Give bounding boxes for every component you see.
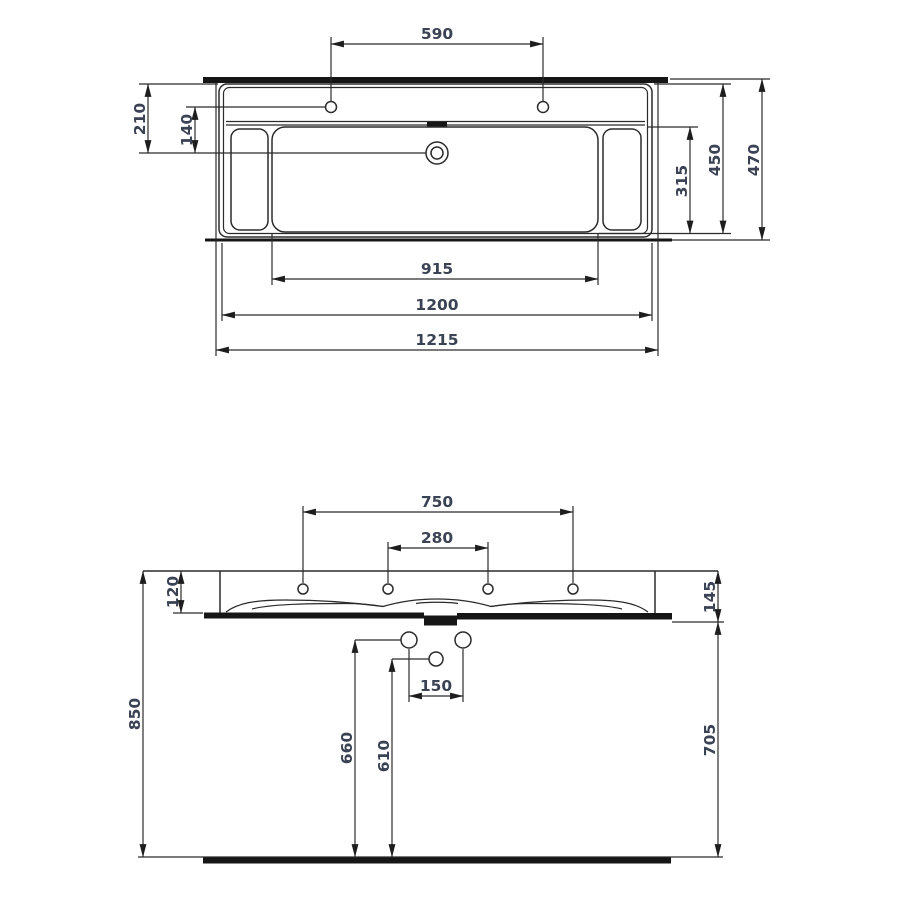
dim-bowl-edge-to-drain: 140 [178,107,325,153]
dim-rim-depth: 450 [654,84,731,234]
dim-label-315: 315 [673,165,691,197]
dim-label-750: 750 [421,493,454,511]
mounting-hole-1 [298,584,308,594]
mounting-hole-4 [568,584,578,594]
trap-block [424,616,457,626]
front-view: 750 280 120 145 150 660 [126,493,724,864]
waste-outlet-left [401,632,417,648]
dim-waste-spacing: 150 [409,649,463,702]
dim-label-705: 705 [701,724,719,756]
dim-label-450: 450 [706,144,724,177]
dim-left-waste-height: 660 [338,640,356,857]
mounting-hole-3 [483,584,493,594]
bowl-underside-inner-center [416,602,458,603]
dim-edge-to-drain: 210 [131,84,426,153]
bowl-underside-inner-right [491,604,622,610]
dim-label-850: 850 [126,698,144,731]
waste-outlet-center [429,652,443,666]
dim-label-210: 210 [131,103,149,136]
dim-label-1200: 1200 [415,296,458,314]
dim-front-apron-height: 120 [164,571,203,613]
basin-bottom-band-right [457,613,672,620]
right-deck-pocket [603,129,641,230]
dim-bowl-width: 915 [272,234,598,285]
dim-center-waste-height: 610 [375,659,393,857]
dim-label-660: 660 [338,732,356,765]
rim-inner-outline [224,88,648,234]
bowl-underside-inner-left [252,604,383,610]
floor-band [203,858,671,864]
dim-label-610: 610 [375,740,393,773]
mounting-hole-2 [383,584,393,594]
faucet-hole-left [326,102,337,113]
waste-outlet-right [455,632,471,648]
basin-bottom-band-left [204,613,424,619]
drain-inner-circle [431,147,443,159]
dim-overall-height: 145 [701,571,719,622]
dim-rim-height-from-floor: 850 [126,571,144,857]
dim-label-590: 590 [421,25,454,43]
dim-inner-hole-spacing: 280 [388,529,488,583]
drawing-page: 590 210 140 315 450 [0,0,900,900]
dim-label-470: 470 [745,144,763,177]
dim-label-1215: 1215 [415,331,458,349]
dim-faucet-spacing: 590 [331,25,543,101]
dim-bowl-depth: 315 [599,127,731,234]
dim-rim-width: 1200 [222,243,652,321]
left-deck-pocket [231,129,268,230]
dim-underside-height-from-floor: 705 [701,622,719,857]
dim-label-120: 120 [164,576,182,609]
drain-outer-circle [426,142,448,164]
dim-label-915: 915 [421,260,453,278]
dim-label-280: 280 [421,529,454,547]
front-shadow-band [205,239,672,242]
wall-edge-band [203,77,668,83]
bowl-underside-curve [226,599,648,612]
technical-drawing-canvas: 590 210 140 315 450 [0,0,900,900]
dim-label-140: 140 [178,114,196,147]
dim-label-145: 145 [701,581,719,613]
top-view: 590 210 140 315 450 [131,25,770,356]
dim-label-150: 150 [420,677,453,695]
faucet-hole-right [538,102,549,113]
